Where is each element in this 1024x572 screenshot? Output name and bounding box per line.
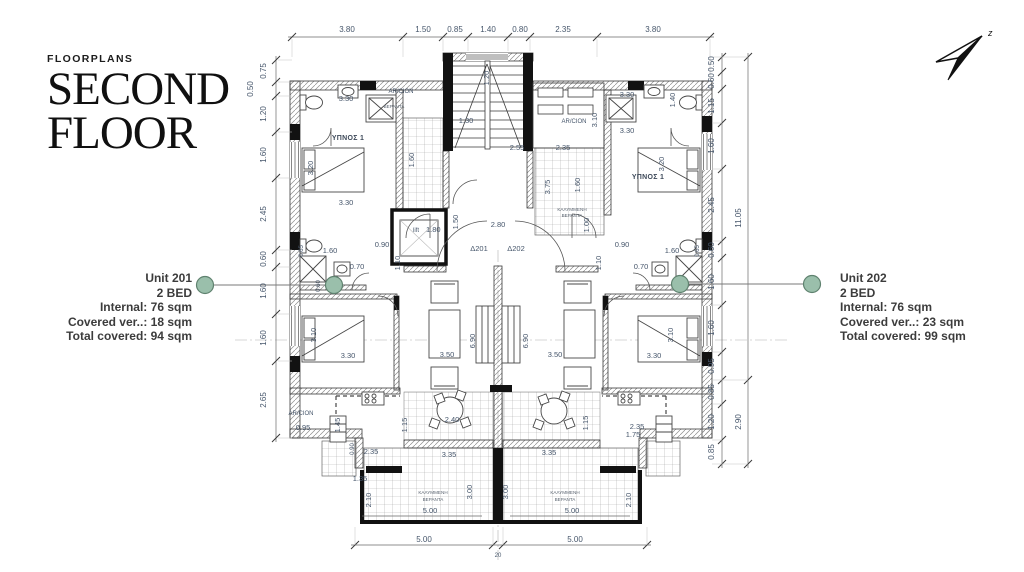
porch-right	[646, 441, 680, 476]
dim-label: 1.60	[259, 330, 268, 346]
dim-label: 2.35	[556, 143, 571, 152]
toilet-top-right	[680, 95, 703, 110]
dim-label: 0.85	[707, 444, 716, 460]
dim-label: 3.80	[339, 25, 355, 34]
dim-label: 0.95	[707, 358, 716, 374]
dim-label: 2.45	[707, 197, 716, 213]
dim-label: 1.60	[707, 320, 716, 336]
room-label-ac-left: AR/CION	[388, 89, 413, 95]
dim-label: 2.80	[491, 220, 506, 229]
dim-label: 3.10	[666, 328, 675, 343]
dim-label: 1.50	[451, 215, 460, 230]
dim-label: 1.40	[668, 93, 677, 108]
dim-label: 1.75	[626, 430, 641, 439]
dim-label: 5.00	[423, 506, 438, 515]
living-left	[429, 281, 460, 389]
dim-label: 6.90	[468, 334, 477, 349]
dim-label: 1.20	[482, 71, 491, 86]
room-label-ac-kitchen-left: AR/CION	[288, 411, 313, 417]
dim-label: 3.10	[590, 113, 599, 128]
dim-label: 3.30	[620, 126, 635, 135]
dim-label: 0.90	[615, 240, 630, 249]
dim-label: 0.90	[375, 240, 390, 249]
shower-box-top-right	[606, 95, 636, 122]
dim-label: 3.30	[341, 351, 356, 360]
north-arrow-icon: z	[936, 28, 993, 80]
veranda-label-1-right: ΚΑΛΥΜΜΕΝΗ	[550, 490, 579, 495]
dim-label: 1.00	[582, 218, 591, 233]
dim-label: 0.75	[259, 63, 268, 79]
dim-label: 3.10	[309, 328, 318, 343]
room-label-bedroom1-right: ΥΠΝΟΣ 1	[632, 174, 664, 181]
dim-label: 5.00	[416, 535, 432, 544]
dim-label: 0.70	[350, 262, 365, 271]
dim-label: 0.65	[299, 245, 305, 257]
dim-label: 3.30	[620, 90, 635, 99]
dim-label: 1.30	[459, 116, 474, 125]
dim-label: 1.60	[707, 274, 716, 290]
lift-label: lift	[413, 228, 419, 234]
dim-label: 2.35	[555, 25, 571, 34]
floor-plan-drawing: z 3.80 1.50 0.85 1.40 0.80 2.35 3.80 0.7…	[0, 0, 1024, 572]
dim-label: 3.30	[339, 198, 354, 207]
room-label-bedroom1-left: ΥΠΝΟΣ 1	[332, 135, 364, 142]
dim-label: 0.70	[634, 262, 649, 271]
dim-label: 3.50	[440, 350, 455, 359]
door-202-label: Δ202	[507, 244, 525, 253]
dim-label: 1.35	[353, 474, 368, 483]
bed-right-1	[638, 148, 700, 192]
north-label: z	[987, 28, 993, 38]
dim-label: 11.05	[734, 208, 743, 228]
dim-label: 5.00	[567, 535, 583, 544]
dim-label: 3.30	[339, 94, 354, 103]
dim-label: 0.65	[695, 245, 701, 257]
court-label-2: ΒΕΡΑΝΤΑ	[562, 213, 584, 218]
dim-label: 0.50	[707, 56, 716, 72]
dim-label: 1.60	[573, 178, 582, 193]
dim-label: 2.10	[624, 493, 633, 508]
shower-box-mid-left	[300, 256, 326, 282]
dim-label: 2.55	[510, 143, 525, 152]
dim-label: 1.60	[323, 246, 338, 255]
dim-label: 3.30	[647, 351, 662, 360]
dim-label: 1.60	[259, 283, 268, 299]
dim-label: 6.90	[521, 334, 530, 349]
dim-label: 2.35	[364, 447, 379, 456]
dim-label: 1.60	[407, 153, 416, 168]
dim-label: 3.00	[501, 485, 510, 500]
dim-label: 1.60	[707, 138, 716, 154]
dim-label: 3.75	[543, 180, 552, 195]
dim-label: 1.15	[707, 98, 716, 114]
dim-label: 0.90	[350, 443, 356, 455]
dim-label: 0.60	[707, 242, 716, 258]
court-label-1: ΚΑΛΥΜΜΕΝΗ	[557, 207, 586, 212]
dim-label: 3.50	[548, 350, 563, 359]
veranda-label-2-left: ΒΕΡΑΝΤΑ	[423, 497, 445, 502]
dim-label: 0.60	[259, 251, 268, 267]
door-201-label: Δ201	[470, 244, 488, 253]
vanity-top-right	[644, 85, 664, 98]
dim-label: 1.60	[259, 147, 268, 163]
dim-label: 0.80	[512, 25, 528, 34]
walls	[290, 53, 712, 468]
living-right	[564, 281, 595, 389]
toilet-top-left	[300, 95, 323, 110]
dim-label: 1.15	[581, 416, 590, 431]
unit-201-marker-label[interactable]	[197, 277, 214, 294]
unit-202-marker-label[interactable]	[804, 276, 821, 293]
kitchen-left	[330, 392, 400, 442]
dim-label: 1.45	[333, 418, 342, 433]
room-label-veranda-small: ΒΕΡΑΝΤΑ	[384, 104, 406, 109]
dim-label: 2.10	[364, 493, 373, 508]
dim-label: 1.80	[426, 225, 441, 234]
veranda-label-2-right: ΒΕΡΑΝΤΑ	[555, 497, 577, 502]
floorplan-page: FLOORPLANS SECOND FLOOR Unit 201 2 BED I…	[0, 0, 1024, 572]
dim-label: 1.20	[707, 414, 716, 430]
dim-label: 1.20	[259, 106, 268, 122]
dim-label: 3.20	[657, 157, 666, 172]
dim-label: 0.60	[316, 280, 322, 292]
unit-202-marker-plan[interactable]	[672, 276, 689, 293]
dim-label: 1.10	[393, 256, 402, 271]
dim-label: 1.60	[665, 246, 680, 255]
dim-label: 1.10	[594, 256, 603, 271]
dim-label: 0.50	[246, 81, 255, 97]
dim-label: 3.80	[645, 25, 661, 34]
dim-label: 3.00	[465, 485, 474, 500]
dim-label: 20	[495, 553, 502, 559]
dim-label: 2.65	[259, 392, 268, 408]
dim-label: 1.50	[415, 25, 431, 34]
vanity-mid-right	[652, 262, 668, 276]
dim-label: 3.20	[306, 161, 315, 176]
vanity-mid-left	[334, 262, 350, 276]
dim-label: 3.35	[442, 450, 457, 459]
dim-label: 0.85	[707, 384, 716, 400]
dim-label: 3.35	[542, 448, 557, 457]
dim-label: 0.85	[447, 25, 463, 34]
dim-label: 0.60	[707, 73, 716, 89]
dim-label: 2.90	[734, 414, 743, 430]
unit-201-marker-plan[interactable]	[326, 277, 343, 294]
dim-label: 2.45	[259, 206, 268, 222]
dim-label: 2.40	[445, 415, 460, 424]
dim-label: 5.00	[565, 506, 580, 515]
dim-label: 1.40	[480, 25, 496, 34]
dim-label: 1.15	[400, 418, 409, 433]
veranda-label-1-left: ΚΑΛΥΜΜΕΝΗ	[418, 490, 447, 495]
dim-label: 0.95	[296, 423, 311, 432]
room-label-ac-right: AR/CION	[561, 119, 586, 125]
